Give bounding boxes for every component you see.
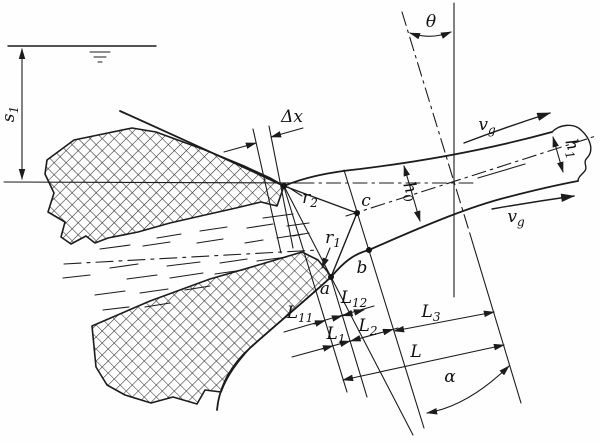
r1-leader: [322, 248, 330, 268]
jet-axis-centerline: [346, 136, 596, 216]
label-r2: r2: [302, 188, 318, 210]
label-theta: θ: [426, 12, 436, 32]
lip-point-dot: [281, 183, 287, 189]
label-L: L: [409, 342, 421, 362]
label-s1: s1: [0, 106, 21, 122]
label-vg-bottom: vg: [507, 207, 525, 229]
point-b-dot: [366, 247, 372, 253]
label-L3: L3: [421, 302, 441, 324]
label-point-b: b: [357, 258, 368, 278]
delta-x-dimension-right: [271, 128, 303, 137]
label-vg-top: vg: [478, 115, 496, 137]
label-L11: L11: [286, 303, 314, 325]
label-alpha: α: [444, 367, 456, 387]
dim-lower-arrow-2b: [351, 339, 358, 341]
contraction-chord-lip-c: [284, 186, 357, 213]
label-L1: L1: [326, 324, 346, 346]
point-c-dot: [354, 210, 360, 216]
figure-canvas: s1 Δx r2 r1 c b a h0 h1 vg vg L11 L12 L1…: [0, 0, 600, 443]
label-L2: L2: [358, 316, 378, 338]
gate-flow-diagram: s1 Δx r2 r1 c b a h0 h1 vg vg L11 L12 L1…: [0, 0, 600, 443]
label-delta-x: Δx: [280, 107, 303, 127]
dim-lower-arrow-3: [384, 329, 393, 332]
theta-angle-arc: [410, 32, 451, 36]
L-dimension: [343, 345, 504, 380]
jet-top-boundary: [284, 132, 552, 186]
vg-top-flow-arrow: [464, 113, 550, 143]
water-surface-mark: [90, 52, 110, 62]
label-h1: h1: [558, 137, 585, 161]
delta-x-dimension-left: [224, 143, 256, 152]
label-r1: r1: [325, 228, 341, 250]
label-L12: L12: [340, 288, 368, 310]
L3-dimension: [394, 312, 494, 331]
lower-sill-block: [92, 252, 331, 404]
label-point-c: c: [361, 191, 371, 211]
dim-lower-arrow-1: [322, 346, 333, 349]
label-point-a: a: [320, 279, 330, 299]
alpha-angle-arc: [427, 366, 509, 413]
